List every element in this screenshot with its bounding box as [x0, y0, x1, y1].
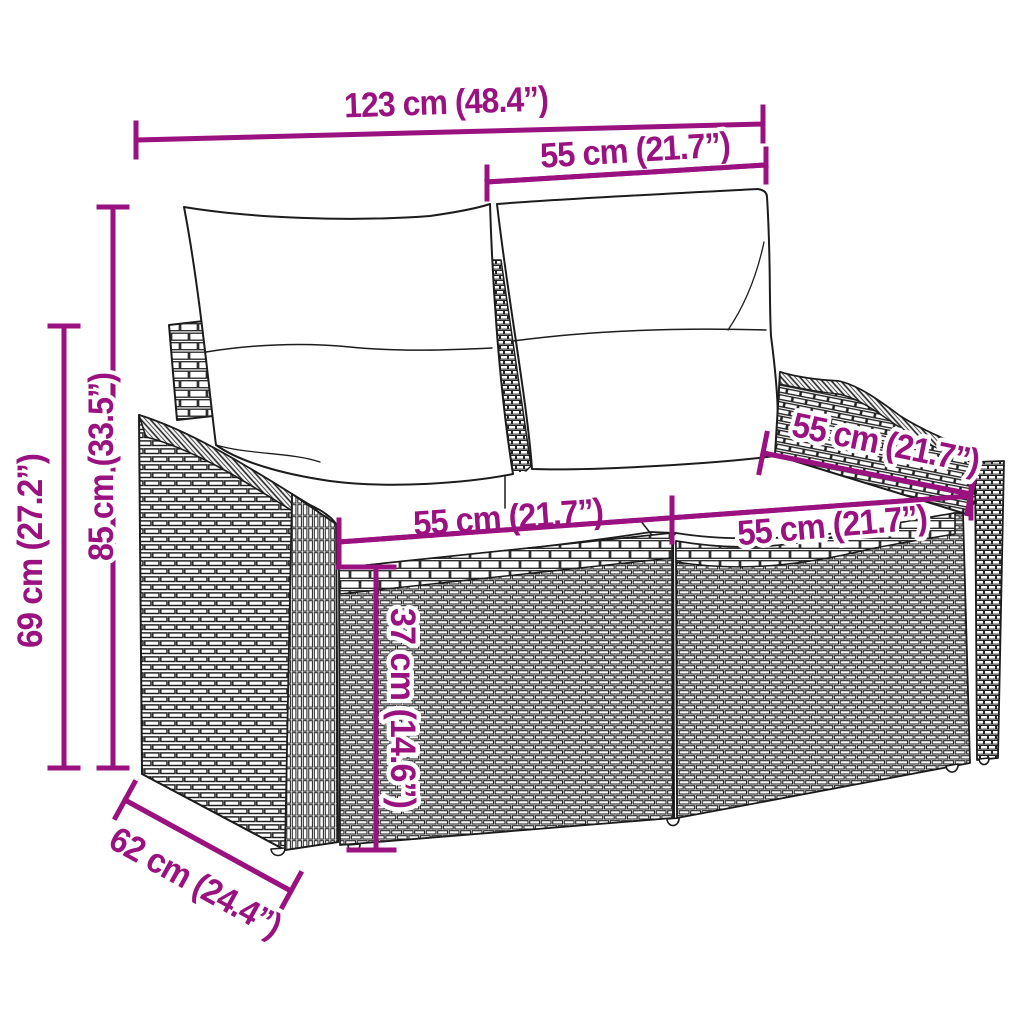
svg-text:37 cm (14.6”): 37 cm (14.6”)	[383, 608, 422, 808]
svg-text:69 cm (27.2”): 69 cm (27.2”)	[11, 454, 50, 648]
svg-text:85 cm (33.5”): 85 cm (33.5”)	[82, 373, 121, 561]
svg-text:123 cm (48.4”): 123 cm (48.4”)	[343, 79, 548, 125]
